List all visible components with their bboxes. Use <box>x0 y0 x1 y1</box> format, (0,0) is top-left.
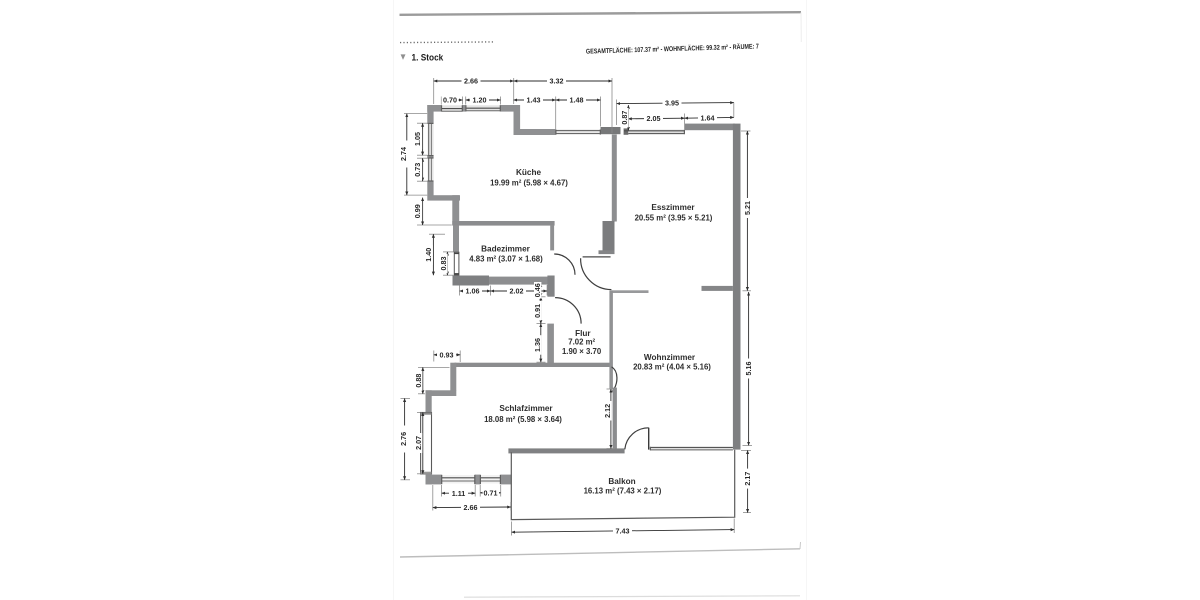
svg-text:1.20: 1.20 <box>473 96 487 105</box>
svg-text:2.76: 2.76 <box>399 432 408 446</box>
svg-text:5.21: 5.21 <box>743 201 752 215</box>
svg-text:Badezimmer: Badezimmer <box>481 244 531 253</box>
svg-text:1.40: 1.40 <box>424 248 433 262</box>
svg-text:16.13 m² (7.43 × 2.17): 16.13 m² (7.43 × 2.17) <box>584 486 662 495</box>
svg-text:20.55 m² (3.95 × 5.21): 20.55 m² (3.95 × 5.21) <box>635 213 713 222</box>
svg-text:0.71: 0.71 <box>484 488 498 497</box>
svg-text:0.46: 0.46 <box>533 283 542 297</box>
svg-text:0.70: 0.70 <box>443 96 457 105</box>
svg-text:7.02 m²: 7.02 m² <box>568 338 595 347</box>
svg-text:Wohnzimmer: Wohnzimmer <box>644 353 696 362</box>
svg-text:0.88: 0.88 <box>414 374 423 388</box>
svg-text:2.07: 2.07 <box>414 436 423 450</box>
svg-text:19.99 m² (5.98 × 4.67): 19.99 m² (5.98 × 4.67) <box>490 178 568 187</box>
svg-text:Flur: Flur <box>575 329 591 338</box>
svg-text:2.12: 2.12 <box>603 404 612 418</box>
svg-text:5.16: 5.16 <box>744 362 753 376</box>
svg-text:3.95: 3.95 <box>665 99 679 108</box>
svg-text:18.08 m² (5.98 × 3.64): 18.08 m² (5.98 × 3.64) <box>484 415 562 424</box>
svg-text:4.83 m² (3.07 × 1.68): 4.83 m² (3.07 × 1.68) <box>469 255 543 264</box>
svg-text:2.66: 2.66 <box>464 77 478 86</box>
svg-text:1.05: 1.05 <box>413 132 422 146</box>
svg-text:1.06: 1.06 <box>466 287 480 296</box>
svg-text:0.91: 0.91 <box>533 304 542 318</box>
svg-text:1.11: 1.11 <box>452 489 466 498</box>
svg-text:0.99: 0.99 <box>413 204 422 218</box>
svg-text:20.83 m² (4.04 × 5.16): 20.83 m² (4.04 × 5.16) <box>633 362 711 371</box>
svg-text:1.64: 1.64 <box>701 113 715 122</box>
svg-text:1.36: 1.36 <box>533 338 542 352</box>
svg-text:3.32: 3.32 <box>550 77 564 86</box>
svg-text:2.02: 2.02 <box>510 287 524 296</box>
svg-text:Balkon: Balkon <box>608 477 635 486</box>
svg-text:1. Stock: 1. Stock <box>412 53 444 64</box>
svg-text:2.17: 2.17 <box>743 472 752 486</box>
svg-text:Küche: Küche <box>516 168 541 177</box>
svg-text:0.73: 0.73 <box>413 163 422 177</box>
svg-text:2.66: 2.66 <box>464 503 478 512</box>
svg-text:2.05: 2.05 <box>647 114 661 123</box>
svg-text:Schlafzimmer: Schlafzimmer <box>499 404 553 413</box>
svg-text:7.43: 7.43 <box>616 526 630 535</box>
svg-text:0.87: 0.87 <box>620 111 629 125</box>
svg-text:1.43: 1.43 <box>527 96 541 105</box>
svg-text:1.90 × 3.70: 1.90 × 3.70 <box>562 347 602 356</box>
svg-text:Esszimmer: Esszimmer <box>651 203 695 212</box>
svg-text:1.48: 1.48 <box>570 96 584 105</box>
svg-text:2.74: 2.74 <box>399 147 408 161</box>
svg-text:0.93: 0.93 <box>440 350 454 359</box>
svg-text:0.83: 0.83 <box>439 257 448 271</box>
